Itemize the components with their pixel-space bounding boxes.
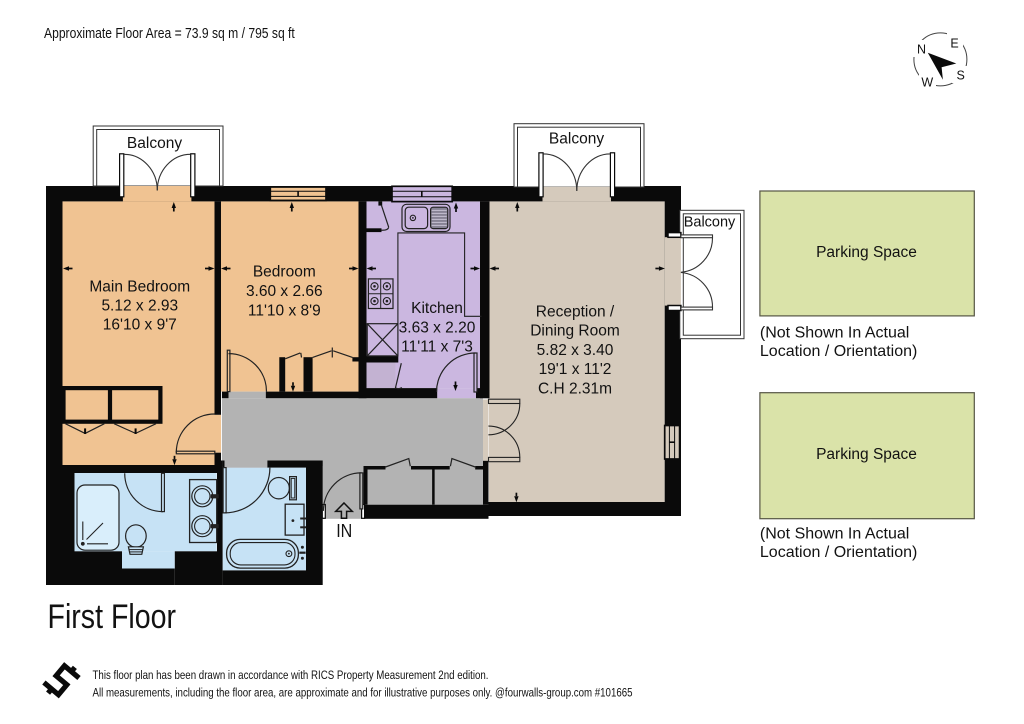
svg-text:Reception /: Reception /	[536, 303, 615, 320]
svg-text:5.12 x 2.93: 5.12 x 2.93	[101, 297, 178, 314]
svg-text:Bedroom: Bedroom	[253, 264, 316, 281]
svg-text:Approximate Floor Area = 73.9: Approximate Floor Area = 73.9 sq m / 795…	[44, 25, 295, 42]
svg-text:Parking Space: Parking Space	[816, 446, 917, 463]
svg-text:All measurements, including th: All measurements, including the floor ar…	[93, 686, 633, 700]
svg-text:16'10 x 9'7: 16'10 x 9'7	[103, 316, 177, 333]
svg-text:Dining Room: Dining Room	[530, 323, 620, 340]
svg-text:11'10 x 8'9: 11'10 x 8'9	[248, 302, 321, 319]
svg-text:(Not Shown In Actual: (Not Shown In Actual	[760, 526, 909, 543]
svg-text:First Floor: First Floor	[48, 598, 177, 636]
svg-text:W: W	[921, 75, 933, 89]
svg-text:5.82 x 3.40: 5.82 x 3.40	[537, 342, 614, 359]
svg-text:Location / Orientation): Location / Orientation)	[760, 544, 917, 561]
svg-text:19'1 x 11'2: 19'1 x 11'2	[539, 361, 612, 378]
svg-text:C.H 2.31m: C.H 2.31m	[538, 381, 612, 398]
svg-text:Kitchen: Kitchen	[411, 300, 463, 317]
svg-text:Main Bedroom: Main Bedroom	[89, 278, 190, 295]
svg-text:3.60 x 2.66: 3.60 x 2.66	[246, 283, 323, 300]
svg-text:IN: IN	[336, 520, 352, 541]
svg-text:This floor plan has been drawn: This floor plan has been drawn in accord…	[93, 668, 489, 682]
svg-text:3.63 x 2.20: 3.63 x 2.20	[399, 320, 476, 337]
svg-text:Balcony: Balcony	[127, 135, 182, 152]
svg-text:Location / Orientation): Location / Orientation)	[760, 343, 917, 360]
svg-text:Balcony: Balcony	[549, 131, 604, 148]
svg-text:Balcony: Balcony	[684, 215, 736, 231]
svg-text:11'11 x 7'3: 11'11 x 7'3	[401, 339, 473, 356]
svg-text:E: E	[950, 37, 958, 51]
svg-text:S: S	[957, 69, 965, 83]
svg-text:N: N	[917, 42, 926, 56]
svg-text:Parking Space: Parking Space	[816, 244, 917, 261]
svg-text:(Not Shown In Actual: (Not Shown In Actual	[760, 324, 909, 341]
